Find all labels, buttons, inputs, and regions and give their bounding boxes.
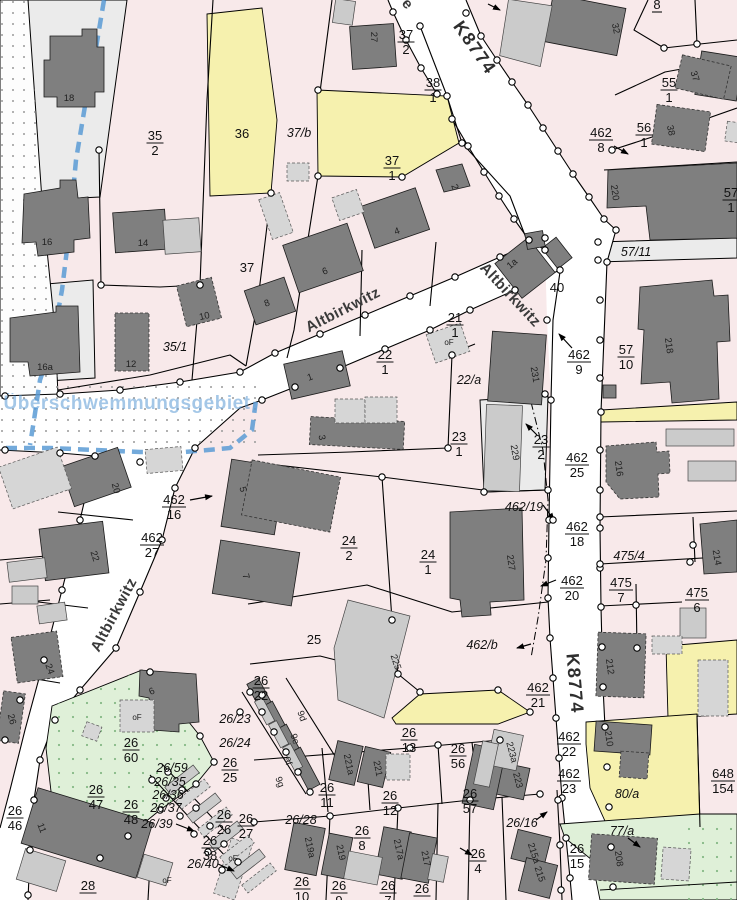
- survey-point: [661, 45, 667, 51]
- survey-point: [292, 384, 298, 390]
- survey-point: [463, 10, 469, 16]
- survey-point: [497, 254, 503, 260]
- survey-point: [137, 459, 143, 465]
- fraction-numerator: 28: [81, 878, 95, 893]
- survey-point: [221, 841, 227, 847]
- survey-point: [207, 823, 213, 829]
- parcel-fraction-f26_26: 2626: [216, 807, 233, 837]
- parcel-fraction-f8: 8: [652, 0, 662, 12]
- survey-point: [525, 102, 531, 108]
- survey-point: [417, 23, 423, 29]
- survey-point: [481, 169, 487, 175]
- fraction-denominator: 57: [463, 801, 477, 816]
- parcel-fraction-f26_15: 2615: [569, 841, 586, 871]
- fraction-numerator: 462: [141, 530, 163, 545]
- map-label-of2: oF: [444, 338, 453, 347]
- fraction-denominator: 26: [217, 822, 231, 837]
- fraction-numerator: 57: [724, 185, 737, 200]
- parcel-fraction-f26_10: 2610: [294, 874, 311, 900]
- survey-point: [27, 847, 33, 853]
- map-label-i26_59: 26/59: [155, 761, 187, 775]
- fraction-numerator: 648: [712, 766, 734, 781]
- map-label-i26_40: 26/40: [186, 857, 218, 871]
- parcel-fraction-f26_27: 2627: [238, 811, 255, 841]
- fraction-denominator: 8: [597, 140, 604, 155]
- map-label-b227: 227: [504, 554, 517, 571]
- survey-point: [113, 645, 119, 651]
- fraction-denominator: 1: [429, 90, 436, 105]
- map-label-i462b: 462/b: [466, 638, 497, 652]
- survey-point: [362, 312, 368, 318]
- fraction-denominator: 27: [239, 826, 253, 841]
- fraction-denominator: 154: [712, 781, 734, 796]
- fraction-denominator: 48: [124, 812, 138, 827]
- fraction-numerator: 26: [381, 878, 395, 893]
- survey-point: [52, 717, 58, 723]
- fraction-denominator: 56: [451, 756, 465, 771]
- fraction-numerator: 462: [566, 519, 588, 534]
- survey-point: [444, 93, 450, 99]
- fraction-numerator: 23: [452, 429, 466, 444]
- survey-point: [542, 391, 548, 397]
- fraction-numerator: 475: [686, 585, 708, 600]
- fraction-denominator: 46: [8, 818, 22, 833]
- fraction-numerator: 8: [653, 0, 660, 12]
- survey-point: [96, 147, 102, 153]
- parcel-fraction-f26_46: 2646: [7, 803, 24, 833]
- fraction-numerator: 26: [415, 881, 429, 896]
- map-label-p25: 25: [307, 632, 321, 647]
- survey-point: [211, 759, 217, 765]
- fraction-numerator: 26: [383, 788, 397, 803]
- fraction-numerator: 462: [566, 450, 588, 465]
- fraction-numerator: 55: [662, 75, 676, 90]
- map-label-b32: 32: [609, 22, 622, 35]
- fraction-denominator: 6: [693, 600, 700, 615]
- survey-point: [315, 173, 321, 179]
- survey-point: [197, 733, 203, 739]
- fraction-denominator: 11: [320, 795, 334, 810]
- survey-point: [219, 867, 225, 873]
- fraction-numerator: 38: [426, 75, 440, 90]
- fraction-numerator: 462: [558, 729, 580, 744]
- survey-point: [41, 657, 47, 663]
- survey-point: [395, 671, 401, 677]
- survey-point: [197, 282, 203, 288]
- survey-point: [247, 689, 253, 695]
- survey-point: [445, 445, 451, 451]
- survey-point: [467, 307, 473, 313]
- fraction-numerator: 26: [89, 782, 103, 797]
- survey-point: [259, 397, 265, 403]
- survey-point: [449, 116, 455, 122]
- survey-point: [555, 148, 561, 154]
- fraction-denominator: 22: [254, 688, 268, 703]
- survey-point: [557, 267, 563, 273]
- survey-point: [542, 247, 548, 253]
- fraction-numerator: 26: [124, 797, 138, 812]
- survey-point: [511, 216, 517, 222]
- survey-point: [586, 194, 592, 200]
- survey-point: [597, 514, 603, 520]
- survey-point: [407, 293, 413, 299]
- fraction-numerator: 462: [163, 492, 185, 507]
- survey-point: [597, 525, 603, 531]
- map-label-i26_37: 26/37: [149, 801, 182, 815]
- fraction-denominator: 25: [570, 465, 584, 480]
- fraction-numerator: 37: [385, 153, 399, 168]
- parcel-fraction-f57_10: 5710: [618, 342, 635, 372]
- fraction-numerator: 26: [355, 823, 369, 838]
- fraction-numerator: 26: [254, 673, 268, 688]
- survey-point: [599, 644, 605, 650]
- survey-point: [563, 835, 569, 841]
- fraction-denominator: 1: [727, 200, 734, 215]
- map-label-b218: 218: [662, 337, 675, 354]
- survey-point: [526, 237, 532, 243]
- survey-point: [389, 617, 395, 623]
- fraction-denominator: 2: [537, 447, 544, 462]
- map-label-i462_19: 462/19: [505, 500, 543, 514]
- survey-point: [570, 171, 576, 177]
- survey-point: [545, 487, 551, 493]
- survey-point: [97, 855, 103, 861]
- map-label-b220: 220: [608, 184, 621, 201]
- survey-point: [37, 757, 43, 763]
- survey-point: [597, 375, 603, 381]
- fraction-denominator: 7: [617, 590, 624, 605]
- survey-point: [497, 737, 503, 743]
- fraction-denominator: 2: [151, 143, 158, 158]
- survey-point: [271, 729, 277, 735]
- map-canvas[interactable]: 3523723813718551561462857121122146295710…: [0, 0, 737, 900]
- fraction-numerator: 26: [402, 725, 416, 740]
- map-label-i22a: 22/a: [456, 373, 481, 387]
- fraction-denominator: 1: [388, 168, 395, 183]
- fraction-denominator: 18: [570, 534, 584, 549]
- survey-point: [459, 140, 465, 146]
- map-label-i26_36: 26/36: [151, 788, 183, 802]
- map-label-of3: oF: [162, 876, 171, 885]
- survey-point: [59, 587, 65, 593]
- survey-point: [598, 604, 604, 610]
- parcel-fraction-f26_22: 2622: [253, 673, 270, 703]
- survey-point: [379, 474, 385, 480]
- fraction-denominator: 1: [424, 562, 431, 577]
- survey-point: [602, 724, 608, 730]
- survey-point: [337, 365, 343, 371]
- fraction-denominator: 23: [562, 781, 576, 796]
- survey-point: [608, 844, 614, 850]
- fraction-denominator: 13: [402, 740, 416, 755]
- fraction-numerator: 23: [534, 432, 548, 447]
- map-label-i37b: 37/b: [287, 126, 311, 140]
- map-label-b12: 12: [126, 359, 137, 370]
- fraction-numerator: 57: [619, 342, 633, 357]
- fraction-denominator: 10: [295, 889, 309, 900]
- survey-point: [57, 450, 63, 456]
- map-label-i57_11: 57/11: [621, 245, 651, 259]
- fraction-numerator: 475: [610, 575, 632, 590]
- survey-point: [544, 317, 550, 323]
- survey-point: [597, 297, 603, 303]
- survey-point: [172, 485, 178, 491]
- map-label-flood: Überschwemmungsgebiet: [4, 393, 251, 414]
- map-label-b38: 38: [664, 124, 677, 137]
- fraction-numerator: 26: [451, 741, 465, 756]
- fraction-numerator: 26: [239, 811, 253, 826]
- map-label-b18: 18: [64, 93, 75, 104]
- survey-point: [633, 602, 639, 608]
- survey-point: [548, 397, 554, 403]
- map-label-b14: 14: [138, 238, 149, 249]
- survey-point: [558, 887, 564, 893]
- map-label-b16: 16: [42, 237, 53, 248]
- survey-point: [77, 517, 83, 523]
- map-label-b216: 216: [612, 460, 625, 477]
- survey-point: [547, 635, 553, 641]
- fraction-denominator: 20: [565, 588, 579, 603]
- cadastral-map: 3523723813718551561462857121122146295710…: [0, 0, 737, 900]
- survey-point: [307, 789, 313, 795]
- survey-point: [435, 742, 441, 748]
- survey-point: [315, 87, 321, 93]
- fraction-numerator: 26: [8, 803, 22, 818]
- fraction-numerator: 26: [332, 878, 346, 893]
- map-label-i475_4: 475/4: [613, 549, 644, 563]
- fraction-numerator: 462: [561, 573, 583, 588]
- fraction-numerator: 24: [421, 547, 435, 562]
- fraction-denominator: 22: [562, 744, 576, 759]
- fraction-numerator: 26: [471, 846, 485, 861]
- survey-point: [595, 239, 601, 245]
- fraction-numerator: 56: [637, 120, 651, 135]
- fraction-numerator: 26: [223, 755, 237, 770]
- fraction-numerator: 26: [203, 833, 217, 848]
- survey-point: [77, 687, 83, 693]
- fraction-numerator: 26: [295, 874, 309, 889]
- fraction-numerator: 21: [448, 310, 462, 325]
- survey-point: [550, 517, 556, 523]
- map-label-i26_24: 26/24: [218, 736, 250, 750]
- parcel-fraction-f26_56: 2656: [450, 741, 467, 771]
- map-label-i77a: 77/a: [610, 824, 634, 838]
- survey-point: [449, 352, 455, 358]
- map-label-of1: oF: [132, 713, 141, 722]
- survey-point: [597, 447, 603, 453]
- survey-point: [495, 687, 501, 693]
- parcel-fraction-f26_48: 2648: [123, 797, 140, 827]
- survey-point: [597, 561, 603, 567]
- fraction-denominator: 2: [402, 42, 409, 57]
- survey-point: [17, 697, 23, 703]
- fraction-numerator: 462: [568, 347, 590, 362]
- survey-point: [465, 143, 471, 149]
- parcel-fraction-f26_47: 2647: [88, 782, 105, 812]
- fraction-denominator: 8: [358, 838, 365, 853]
- fraction-denominator: 27: [145, 545, 159, 560]
- fraction-numerator: 35: [148, 128, 162, 143]
- survey-point: [598, 409, 604, 415]
- survey-point: [272, 350, 278, 356]
- map-label-i26_39: 26/39: [140, 817, 172, 831]
- map-label-b16a: 16a: [37, 362, 54, 373]
- fraction-numerator: 26: [320, 780, 334, 795]
- survey-point: [390, 9, 396, 15]
- survey-point: [509, 79, 515, 85]
- survey-point: [418, 65, 424, 71]
- map-label-b10: 10: [198, 310, 211, 323]
- map-label-of4: oF: [228, 854, 237, 863]
- fraction-denominator: 9: [575, 362, 582, 377]
- survey-point: [481, 489, 487, 495]
- parcel-fraction-f26_60: 2660: [123, 735, 140, 765]
- survey-point: [604, 259, 610, 265]
- map-label-b212: 212: [603, 658, 616, 675]
- parcel-fraction-f26_11: 2611: [319, 780, 336, 810]
- map-label-b208: 208: [612, 850, 625, 867]
- survey-point: [687, 559, 693, 565]
- fraction-denominator: 1: [455, 444, 462, 459]
- survey-point: [606, 804, 612, 810]
- survey-point: [550, 675, 556, 681]
- survey-point: [2, 447, 8, 453]
- fraction-numerator: 24: [342, 533, 356, 548]
- map-label-b27: 27: [368, 32, 379, 43]
- fraction-denominator: 10: [619, 357, 633, 372]
- survey-point: [259, 709, 265, 715]
- survey-point: [690, 542, 696, 548]
- survey-point: [601, 216, 607, 222]
- survey-point: [192, 445, 198, 451]
- fraction-denominator: 1: [640, 135, 647, 150]
- survey-point: [597, 337, 603, 343]
- survey-point: [98, 282, 104, 288]
- fraction-numerator: 26: [217, 807, 231, 822]
- fraction-numerator: 462: [527, 680, 549, 695]
- survey-point: [542, 235, 548, 241]
- fraction-denominator: 9: [335, 893, 342, 900]
- survey-point: [604, 764, 610, 770]
- survey-point: [237, 369, 243, 375]
- fraction-denominator: 16: [167, 507, 181, 522]
- map-label-i26_23: 26/23: [218, 712, 250, 726]
- fraction-numerator: 26: [570, 841, 584, 856]
- fraction-denominator: 1: [665, 90, 672, 105]
- fraction-denominator: 7: [384, 893, 391, 900]
- fraction-denominator: 60: [124, 750, 138, 765]
- fraction-numerator: 22: [378, 347, 392, 362]
- survey-point: [555, 797, 561, 803]
- parcel-fraction-f26_12: 2612: [382, 788, 399, 818]
- fraction-numerator: 26: [463, 786, 477, 801]
- fraction-denominator: 4: [474, 861, 481, 876]
- survey-point: [557, 842, 563, 848]
- fraction-denominator: 25: [223, 770, 237, 785]
- survey-point: [92, 453, 98, 459]
- survey-point: [191, 831, 197, 837]
- survey-point: [147, 669, 153, 675]
- survey-point: [137, 589, 143, 595]
- survey-point: [295, 769, 301, 775]
- survey-point: [694, 41, 700, 47]
- survey-point: [327, 813, 333, 819]
- survey-point: [2, 737, 8, 743]
- map-label-b210: 210: [602, 730, 615, 747]
- parcel-fraction-f26_25: 2625: [222, 755, 239, 785]
- survey-point: [610, 884, 616, 890]
- survey-point: [452, 274, 458, 280]
- survey-point: [545, 555, 551, 561]
- fraction-denominator: 47: [89, 797, 103, 812]
- survey-point: [597, 487, 603, 493]
- survey-point: [427, 327, 433, 333]
- survey-point: [193, 781, 199, 787]
- fraction-numerator: 37: [399, 27, 413, 42]
- survey-point: [609, 147, 615, 153]
- map-label-i35_1: 35/1: [163, 340, 187, 354]
- parcel-fraction-f28: 28: [80, 878, 97, 893]
- parcel-fraction-f26_x: 26: [414, 881, 431, 896]
- survey-point: [540, 125, 546, 131]
- survey-point: [177, 379, 183, 385]
- survey-point: [417, 689, 423, 695]
- survey-point: [283, 749, 289, 755]
- map-label-i26_16: 26/16: [505, 816, 537, 830]
- map-label-p37: 37: [240, 260, 254, 275]
- fraction-numerator: 462: [558, 766, 580, 781]
- fraction-denominator: 21: [531, 695, 545, 710]
- fraction-denominator: 15: [570, 856, 584, 871]
- parcel-fraction-f26_13: 2613: [401, 725, 418, 755]
- survey-point: [545, 595, 551, 601]
- survey-point: [399, 174, 405, 180]
- survey-point: [537, 791, 543, 797]
- parcel-fraction-f26_57: 2657: [462, 786, 479, 816]
- map-label-i80a: 80/a: [615, 787, 639, 801]
- survey-point: [613, 227, 619, 233]
- survey-point: [595, 257, 601, 263]
- map-label-i26_28: 26/28: [284, 813, 316, 827]
- map-label-p40: 40: [550, 280, 564, 295]
- survey-point: [496, 193, 502, 199]
- survey-point: [268, 190, 274, 196]
- parcel-fraction-f648_154: 648154: [711, 766, 735, 796]
- fraction-denominator: 2: [345, 548, 352, 563]
- fraction-numerator: 26: [124, 735, 138, 750]
- fraction-numerator: 462: [590, 125, 612, 140]
- survey-point: [125, 833, 131, 839]
- fraction-denominator: 1: [381, 362, 388, 377]
- fraction-denominator: 12: [383, 803, 397, 818]
- map-label-p36: 36: [235, 126, 249, 141]
- survey-point: [634, 645, 640, 651]
- map-label-i26_35: 26/35: [153, 775, 185, 789]
- survey-point: [567, 875, 573, 881]
- survey-point: [600, 684, 606, 690]
- survey-point: [193, 805, 199, 811]
- survey-point: [25, 892, 31, 898]
- survey-point: [553, 715, 559, 721]
- survey-point: [31, 797, 37, 803]
